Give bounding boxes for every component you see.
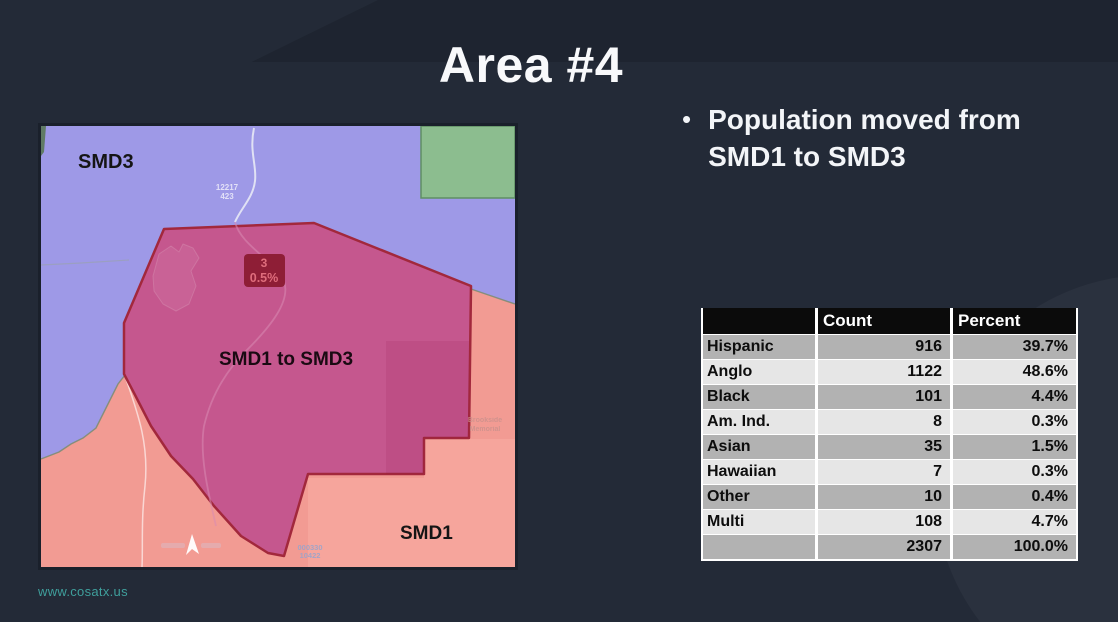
table-cell-percent: 39.7%	[953, 335, 1076, 359]
label-moved: SMD1 to SMD3	[219, 349, 353, 370]
map-marker-text-blur-left	[161, 543, 185, 548]
table-cell-percent: 100.0%	[953, 535, 1076, 559]
label-smd3: SMD3	[78, 151, 134, 173]
table-cell-percent: 0.3%	[953, 460, 1076, 484]
table-grid: Count Percent Hispanic 916 39.7% Anglo 1…	[703, 308, 1076, 559]
table-cell-label	[703, 535, 815, 559]
badge-percent: 0.5%	[250, 271, 279, 285]
district-map: 3 0.5% SMD3 SMD1 to SMD3 SMD1 12217 423 …	[38, 123, 518, 570]
table-cell-percent: 0.3%	[953, 410, 1076, 434]
table-cell-count: 108	[818, 510, 950, 534]
table-cell-count: 2307	[818, 535, 950, 559]
table-header-percent: Percent	[953, 308, 1076, 334]
table-cell-count: 101	[818, 385, 950, 409]
bullet-text: Population moved from SMD1 to SMD3	[708, 101, 1021, 175]
table-cell-percent: 0.4%	[953, 485, 1076, 509]
tract-label-top-1: 12217	[216, 183, 239, 192]
slide-title: Area #4	[0, 36, 1062, 94]
table-cell-percent: 4.4%	[953, 385, 1076, 409]
bullet-line-1: Population moved from	[708, 101, 1021, 138]
table-cell-label: Other	[703, 485, 815, 509]
table-cell-count: 1122	[818, 360, 950, 384]
table-cell-label: Hawaiian	[703, 460, 815, 484]
table-header-blank	[703, 308, 815, 334]
population-table: Count Percent Hispanic 916 39.7% Anglo 1…	[701, 308, 1078, 561]
table-cell-label: Am. Ind.	[703, 410, 815, 434]
table-cell-count: 35	[818, 435, 950, 459]
table-cell-count: 10	[818, 485, 950, 509]
map-marker-text-blur-right	[201, 543, 221, 548]
map-canvas: 3 0.5% SMD3 SMD1 to SMD3 SMD1 12217 423 …	[41, 126, 515, 567]
table-cell-label: Hispanic	[703, 335, 815, 359]
table-cell-label: Asian	[703, 435, 815, 459]
table-cell-label: Multi	[703, 510, 815, 534]
tract-label-right-1: Brookside	[468, 417, 502, 424]
footer-url: www.cosatx.us	[38, 584, 128, 599]
bullet-icon: •	[682, 101, 691, 138]
tract-label-top-2: 423	[220, 192, 234, 201]
badge-number: 3	[261, 256, 268, 270]
bullet-line-2: SMD1 to SMD3	[708, 138, 1021, 175]
table-cell-count: 8	[818, 410, 950, 434]
table-header-count: Count	[818, 308, 950, 334]
map-region-green	[421, 126, 515, 198]
label-smd1: SMD1	[400, 523, 453, 544]
table-cell-count: 7	[818, 460, 950, 484]
table-cell-label: Anglo	[703, 360, 815, 384]
tract-label-right-2: Memorial	[470, 426, 501, 433]
table-cell-percent: 1.5%	[953, 435, 1076, 459]
table-cell-percent: 4.7%	[953, 510, 1076, 534]
tract-label-bottom-2: 10422	[300, 551, 321, 560]
bullet-item: • Population moved from SMD1 to SMD3	[682, 101, 1092, 175]
table-cell-count: 916	[818, 335, 950, 359]
slide: Area #4 • Population moved from SMD1 to …	[0, 0, 1118, 622]
table-cell-label: Black	[703, 385, 815, 409]
table-cell-percent: 48.6%	[953, 360, 1076, 384]
